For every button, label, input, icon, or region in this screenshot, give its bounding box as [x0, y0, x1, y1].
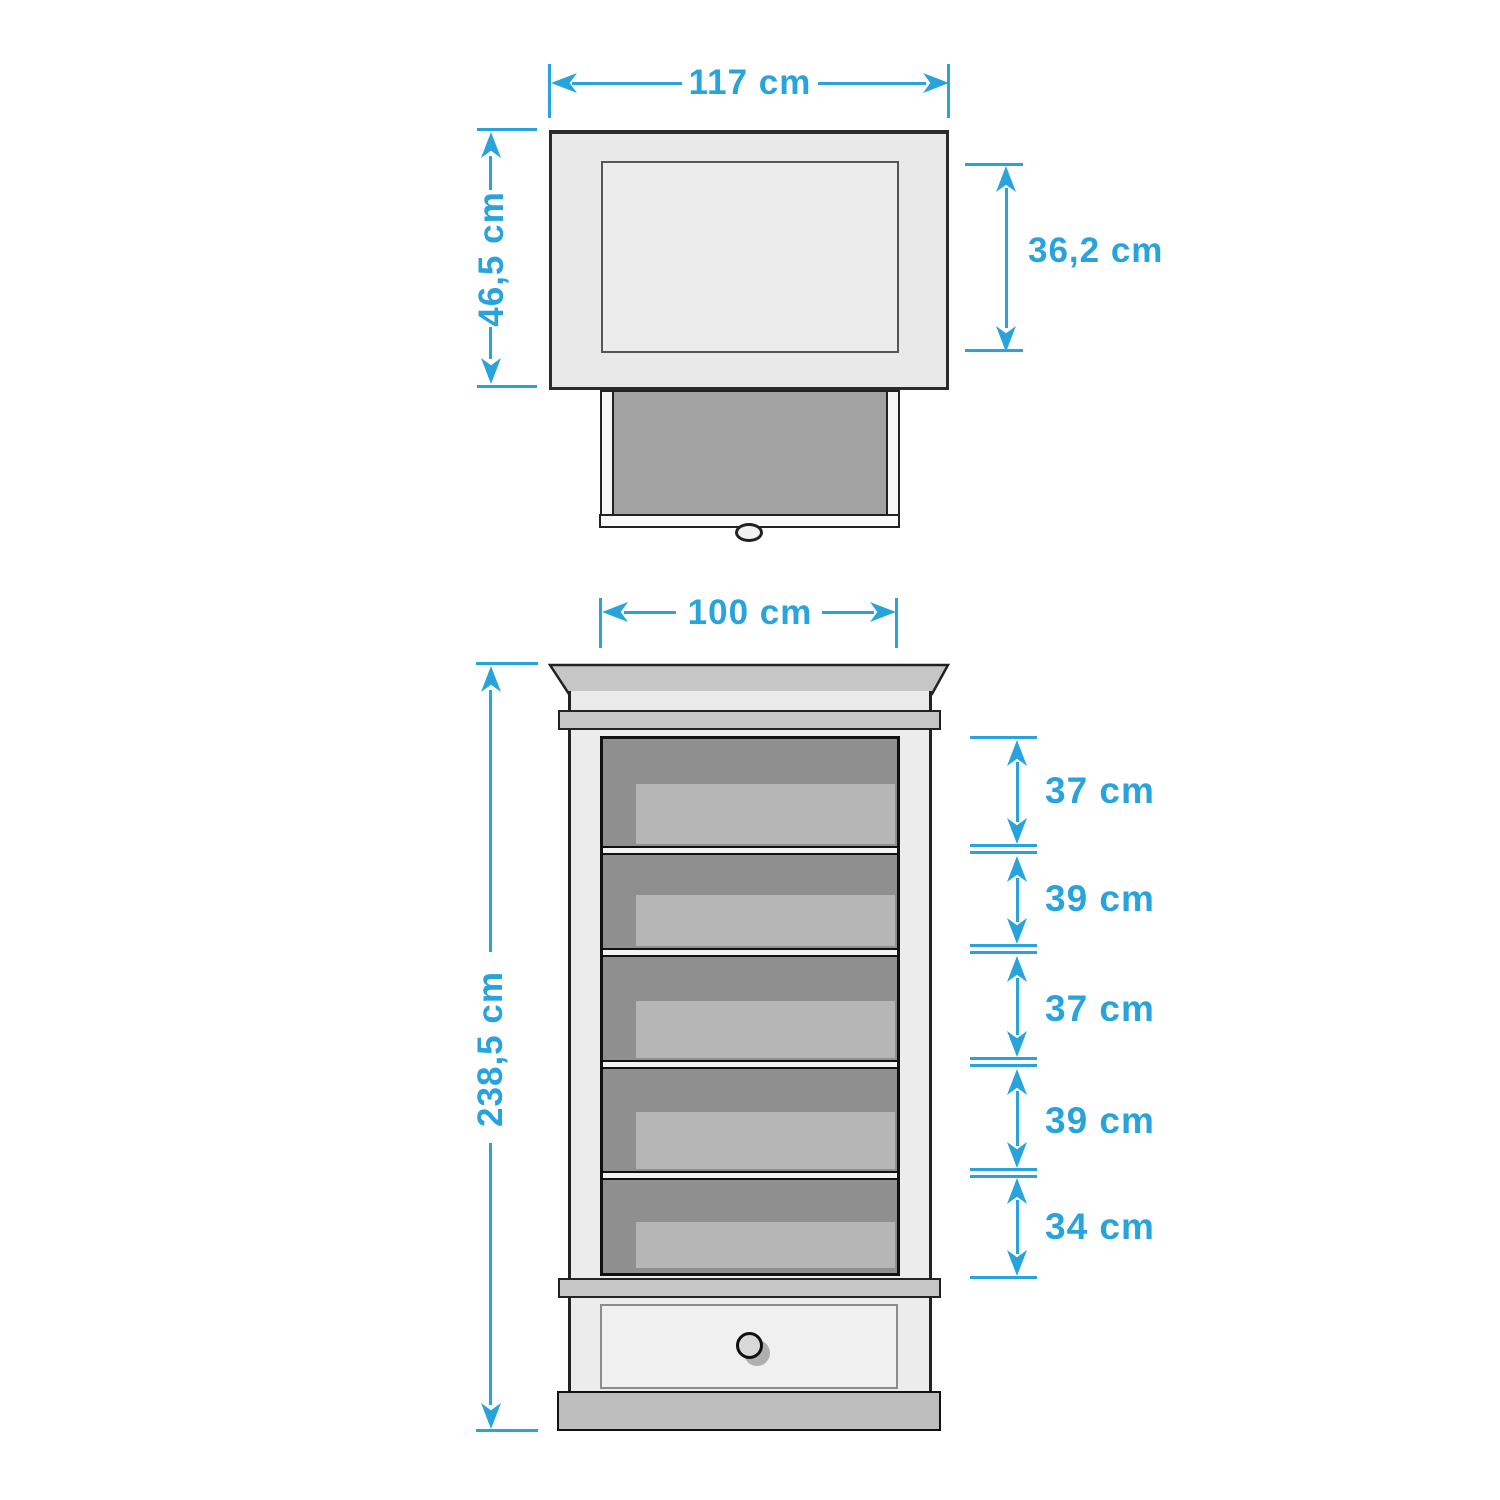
dim-line — [1005, 188, 1008, 328]
dim-tick — [895, 598, 898, 648]
dim-label-shelf-gap: 39 cm — [1045, 876, 1155, 922]
dim-line — [489, 327, 492, 359]
plinth — [557, 1391, 941, 1431]
top-view-drawer-rail-left — [600, 390, 614, 517]
dim-tick — [965, 349, 1023, 352]
dim-tick — [970, 1057, 1037, 1060]
dim-label-front-width: 100 cm — [655, 590, 845, 636]
dim-label-inner-depth: 36,2 cm — [1028, 228, 1163, 274]
shelf-surface — [636, 1222, 895, 1268]
shelf-surface — [636, 1001, 895, 1058]
furniture-dimension-diagram: 117 cm 46,5 cm 36,2 cm — [0, 0, 1500, 1500]
shelf-board — [603, 1060, 897, 1069]
arrowhead-down — [481, 1403, 501, 1429]
shelf-board — [603, 846, 897, 855]
arrowhead-up — [481, 666, 501, 692]
glass-interior — [600, 736, 900, 1276]
dim-line — [489, 1143, 492, 1405]
dim-line — [1016, 762, 1019, 822]
dim-line — [818, 82, 926, 85]
shelf-board — [603, 948, 897, 957]
dim-tick — [548, 64, 551, 118]
dim-tick — [970, 1276, 1037, 1279]
crown-band — [568, 691, 932, 712]
dim-line — [1016, 878, 1019, 922]
dim-line — [1016, 1200, 1019, 1254]
dim-tick — [970, 851, 1037, 854]
shelf-surface — [636, 784, 895, 844]
shelf-board — [603, 1171, 897, 1180]
shelf-surface — [636, 1112, 895, 1169]
dim-label-top-width: 117 cm — [660, 60, 840, 106]
dim-label-shelf-gap: 34 cm — [1045, 1204, 1155, 1250]
top-view-drawer-rail-right — [886, 390, 900, 517]
dim-label-shelf-gap: 37 cm — [1045, 768, 1155, 814]
dim-line — [1016, 1091, 1019, 1146]
dim-label-top-depth: 46,5 cm — [469, 109, 515, 409]
top-view-drawer-interior — [612, 390, 889, 517]
dim-tick — [970, 1175, 1037, 1178]
dim-tick — [970, 736, 1037, 739]
dim-label-shelf-gap: 39 cm — [1045, 1098, 1155, 1144]
dim-tick — [965, 163, 1023, 166]
dim-tick — [599, 598, 602, 648]
arrowhead-right — [923, 73, 949, 93]
dim-tick — [970, 944, 1037, 947]
dim-tick — [970, 951, 1037, 954]
dim-label-shelf-gap: 37 cm — [1045, 986, 1155, 1032]
dim-line — [1016, 978, 1019, 1035]
dim-tick — [970, 1064, 1037, 1067]
top-view-inner-panel — [601, 161, 899, 353]
top-view-drawer-knob — [735, 523, 763, 542]
dim-tick — [476, 662, 538, 665]
shelf-surface — [636, 895, 895, 946]
drawer-knob — [736, 1332, 763, 1359]
dim-tick — [970, 844, 1037, 847]
dim-tick — [476, 1429, 538, 1432]
lower-molding-strip — [558, 1278, 941, 1298]
dim-tick — [970, 1168, 1037, 1171]
upper-molding-strip — [558, 710, 941, 730]
dim-tick — [947, 64, 950, 118]
dim-line — [822, 611, 874, 614]
